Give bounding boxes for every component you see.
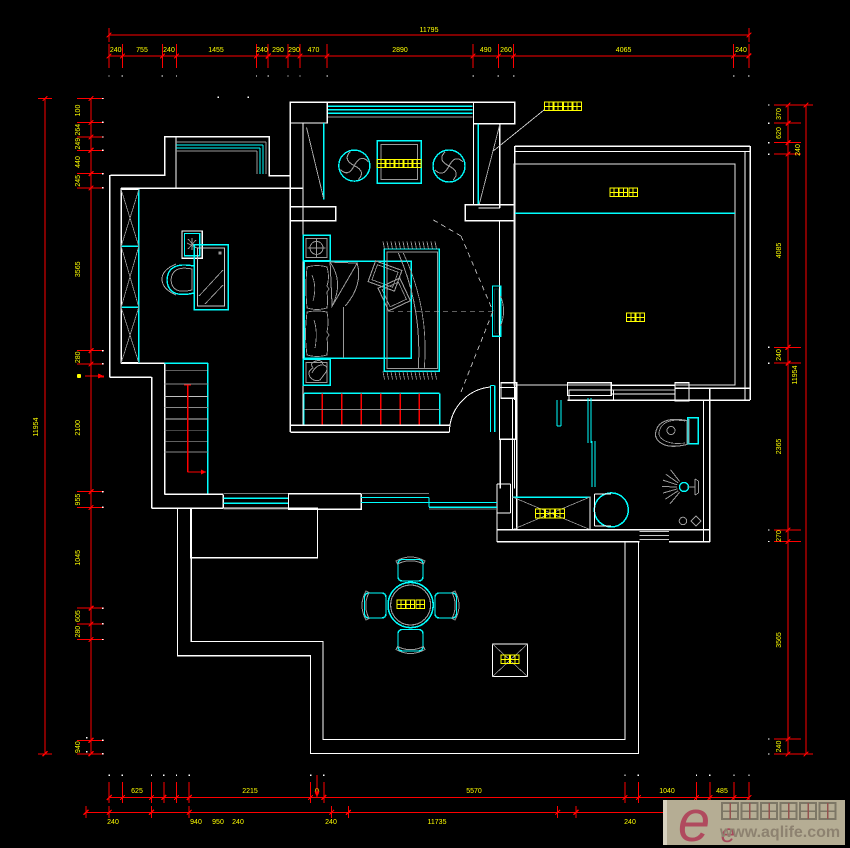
svg-text:940: 940 (190, 819, 202, 826)
svg-text:3565: 3565 (776, 632, 783, 648)
svg-text:e: e (678, 789, 710, 848)
svg-text:4085: 4085 (776, 243, 783, 259)
svg-text:2365: 2365 (776, 439, 783, 455)
svg-text:260: 260 (500, 47, 512, 54)
svg-text:240: 240 (776, 349, 783, 361)
svg-text:1455: 1455 (208, 47, 224, 54)
svg-text:270: 270 (776, 530, 783, 542)
svg-text:490: 490 (480, 47, 492, 54)
svg-text:240: 240 (163, 47, 175, 54)
svg-text:290: 290 (272, 47, 284, 54)
svg-text:2215: 2215 (242, 788, 258, 795)
svg-text:3565: 3565 (75, 261, 82, 277)
svg-text:955: 955 (75, 494, 82, 506)
svg-text:www.aqlife.com: www.aqlife.com (719, 824, 840, 841)
svg-text:249: 249 (75, 138, 82, 150)
svg-text:950: 950 (212, 819, 224, 826)
svg-text:4065: 4065 (616, 47, 632, 54)
svg-text:2890: 2890 (392, 47, 408, 54)
svg-text:470: 470 (308, 47, 320, 54)
svg-text:11954: 11954 (792, 365, 799, 384)
svg-text:240: 240 (256, 47, 268, 54)
svg-text:620: 620 (776, 127, 783, 139)
svg-text:1040: 1040 (659, 788, 675, 795)
svg-text:264: 264 (75, 124, 82, 136)
svg-text:240: 240 (776, 741, 783, 753)
svg-text:605: 605 (75, 610, 82, 622)
svg-text:240: 240 (325, 819, 337, 826)
svg-text:485: 485 (716, 788, 728, 795)
svg-text:280: 280 (75, 626, 82, 638)
svg-text:11795: 11795 (420, 27, 439, 34)
svg-text:440: 440 (75, 156, 82, 168)
svg-text:940: 940 (75, 741, 82, 753)
svg-text:625: 625 (131, 788, 143, 795)
svg-text:240: 240 (735, 47, 747, 54)
svg-text:240: 240 (232, 819, 244, 826)
svg-text:1045: 1045 (75, 550, 82, 566)
svg-text:370: 370 (776, 108, 783, 120)
svg-text:290: 290 (288, 47, 300, 54)
svg-text:240: 240 (624, 819, 636, 826)
svg-text:2100: 2100 (75, 420, 82, 436)
svg-text:280: 280 (75, 351, 82, 363)
svg-text:240: 240 (107, 819, 119, 826)
svg-text:11954: 11954 (33, 417, 40, 436)
svg-text:100: 100 (75, 105, 82, 117)
svg-text:5570: 5570 (466, 788, 482, 795)
svg-text:240: 240 (110, 47, 122, 54)
svg-text:11735: 11735 (428, 819, 447, 826)
svg-text:245: 245 (75, 175, 82, 187)
svg-text:240: 240 (795, 144, 802, 156)
svg-text:755: 755 (136, 47, 148, 54)
